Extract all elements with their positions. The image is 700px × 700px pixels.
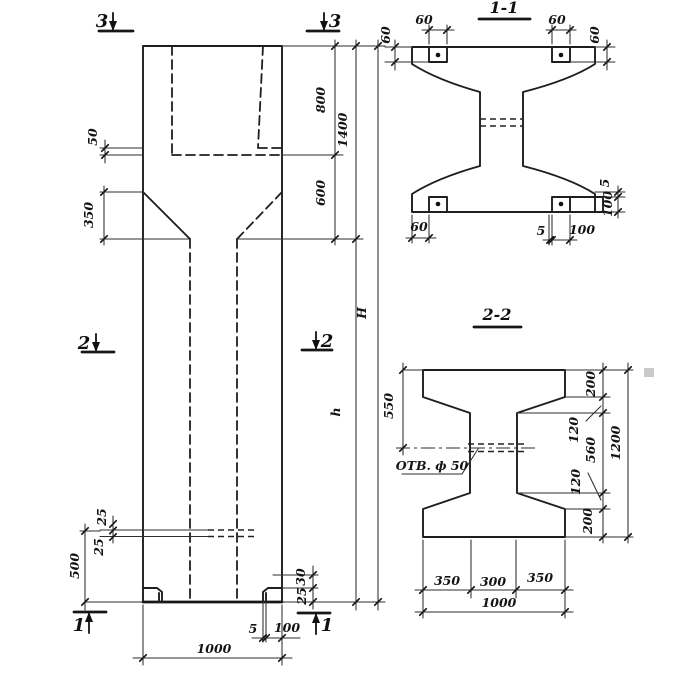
dim-1400-label: 1400 xyxy=(335,112,350,147)
mark-1-left-numeral: 1 xyxy=(73,615,86,636)
mark-2-left-arrowhead xyxy=(92,342,100,352)
s11-dim-br-w: 100 xyxy=(569,222,595,237)
corbel-taper-left xyxy=(143,192,190,239)
s11-dim-r-h: 100 xyxy=(600,191,615,217)
section-2-2-outline xyxy=(423,370,565,537)
dim-500-label: 500 xyxy=(67,553,82,579)
dim-25-upper-label: 25 xyxy=(94,508,109,526)
section-1-1-view: 1-1 xyxy=(412,0,603,212)
web-hidden-lines xyxy=(190,239,237,602)
mark-3-left-arrowhead xyxy=(109,21,117,31)
dim-5-label: 5 xyxy=(249,621,258,636)
technical-drawing-canvas: 50 350 800 1400 600 H h 25 25 500 30 25 … xyxy=(0,0,700,700)
s22-dim-120-top: 120 xyxy=(566,417,581,443)
dim-1000-label: 1000 xyxy=(197,641,232,656)
dim-350-label: 350 xyxy=(81,202,96,228)
s22-dim-300: 300 xyxy=(480,574,506,589)
s22-dim-1200: 1200 xyxy=(608,425,623,460)
anchor-dot-bottom-right xyxy=(559,202,564,207)
scanned-drawing-page: 50 350 800 1400 600 H h 25 25 500 30 25 … xyxy=(0,0,700,700)
dim-25-lower-label: 25 xyxy=(91,538,106,556)
plate-bottom-right-extension xyxy=(570,197,603,212)
anchor-dot-top-right xyxy=(559,53,564,58)
hole-label: ОТВ. ф 50 xyxy=(396,458,469,473)
corbel-taper-right-hidden xyxy=(237,192,282,239)
mark-1-right-numeral: 1 xyxy=(321,615,334,636)
s11-dim-tr-w: 60 xyxy=(548,12,566,27)
section-1-1-outline xyxy=(412,47,595,212)
foot-right xyxy=(263,588,282,602)
column-outline xyxy=(143,46,282,602)
section-1-1-title: 1-1 xyxy=(490,0,519,17)
s11-dim-br-lip: 5 xyxy=(537,223,546,238)
section-1-1-dim-ticks xyxy=(392,27,621,243)
section-2-2-title: 2-2 xyxy=(482,305,512,324)
dim-50-label: 50 xyxy=(85,128,100,146)
section-2-2-view: 2-2 ОТВ. ф 50 xyxy=(396,305,654,537)
mark-3-left-numeral: 3 xyxy=(96,11,109,32)
elevation-view xyxy=(100,46,283,602)
dim-30-label: 30 xyxy=(293,568,308,586)
mark-2-right-arrowhead xyxy=(312,340,320,350)
section-2-2-dimensions: 550 200 120 560 120 200 1200 350 300 350… xyxy=(381,363,633,618)
mark-2-left-numeral: 2 xyxy=(77,333,91,354)
dim-600-label: 600 xyxy=(313,180,328,206)
elevation-dimensions: 50 350 800 1400 600 H h 25 25 500 30 25 … xyxy=(67,25,429,665)
s22-dim-120-bottom: 120 xyxy=(568,469,583,495)
foot-left xyxy=(143,588,162,602)
extension-lines xyxy=(80,25,429,665)
s22-dim-1000: 1000 xyxy=(482,595,517,610)
s22-dim-550: 550 xyxy=(381,393,396,419)
s11-dim-bl: 60 xyxy=(410,219,428,234)
s22-dim-350-right: 350 xyxy=(527,570,553,585)
dim-h-label: h xyxy=(328,407,343,416)
dim-800-label: 800 xyxy=(313,87,328,113)
mark-2-right-numeral: 2 xyxy=(320,331,334,352)
section-1-1-web-hole-hidden xyxy=(480,119,523,126)
anchor-dot-top-left xyxy=(436,53,441,58)
s22-dim-200-top: 200 xyxy=(583,371,598,398)
s11-dim-tl-h: 60 xyxy=(378,26,393,44)
mark-3-right-numeral: 3 xyxy=(329,11,342,32)
mark-1-right-arrowhead xyxy=(312,613,320,623)
mark-1-left-arrowhead xyxy=(85,612,93,622)
head-hidden-lines xyxy=(172,46,283,155)
s22-dim-200-bottom: 200 xyxy=(580,508,595,535)
tie-bar-hidden xyxy=(208,530,256,537)
dim-100-label: 100 xyxy=(274,620,300,635)
mark-3-right-arrowhead xyxy=(320,21,328,31)
s11-dim-tl-w: 60 xyxy=(415,12,433,27)
anchor-dot-bottom-left xyxy=(436,202,441,207)
s22-dim-560: 560 xyxy=(583,437,598,463)
s22-dim-350-left: 350 xyxy=(434,573,460,588)
s11-dim-r-lip: 5 xyxy=(597,179,612,188)
s11-dim-tr-h: 60 xyxy=(587,26,602,44)
dim-25-foot-label: 25 xyxy=(294,587,309,605)
dim-H-label: H xyxy=(354,306,369,320)
scan-artifact xyxy=(644,368,654,377)
